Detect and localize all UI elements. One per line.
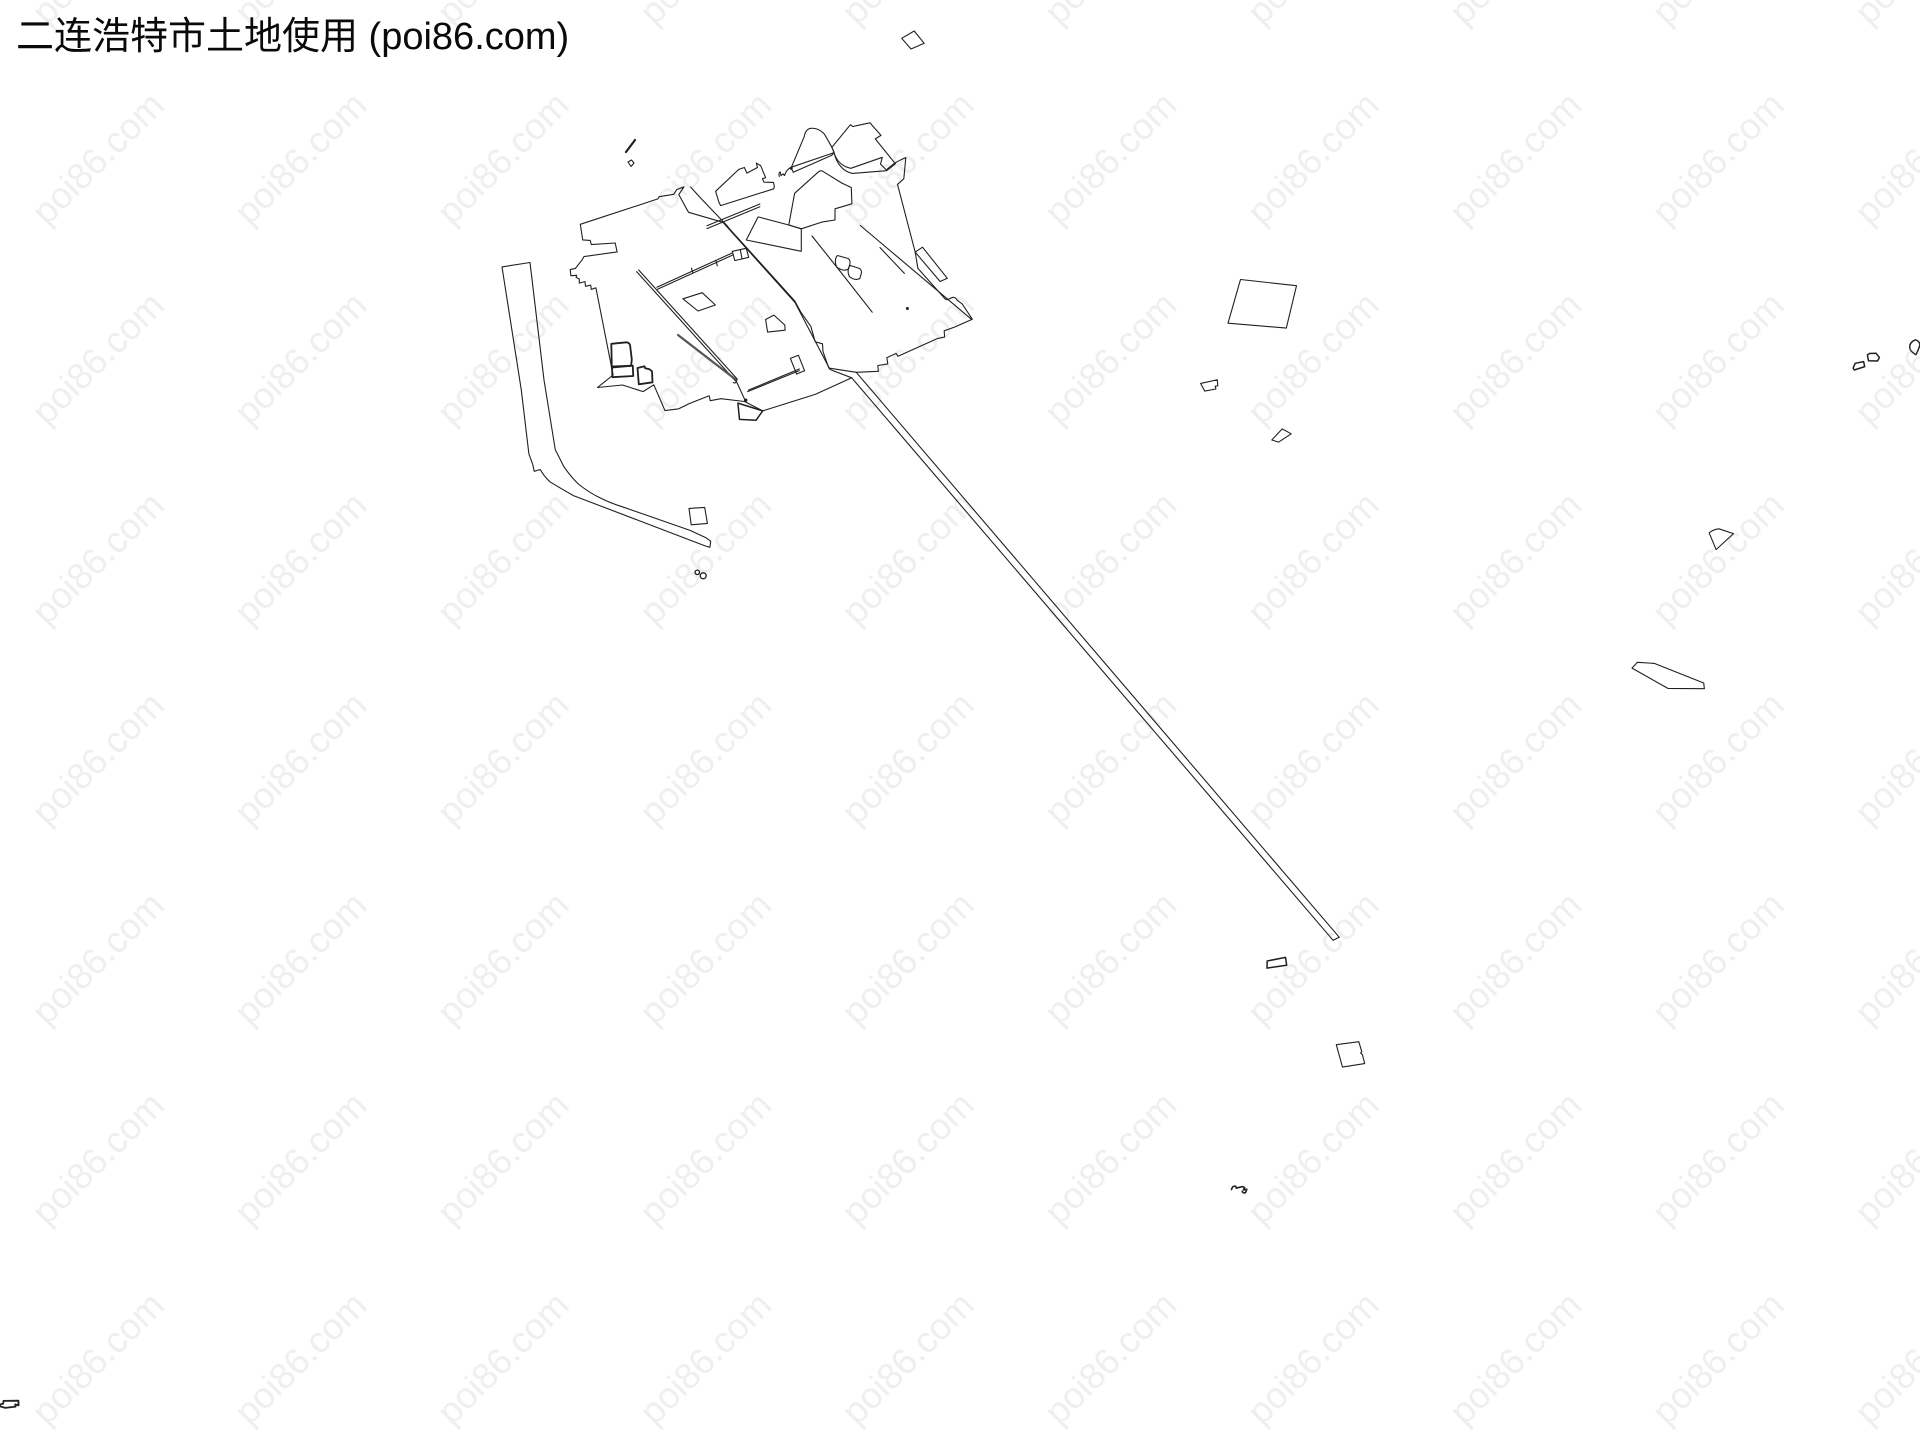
svg-text:二连浩特市土地使用 (poi86.com): 二连浩特市土地使用 (poi86.com) — [16, 16, 569, 58]
